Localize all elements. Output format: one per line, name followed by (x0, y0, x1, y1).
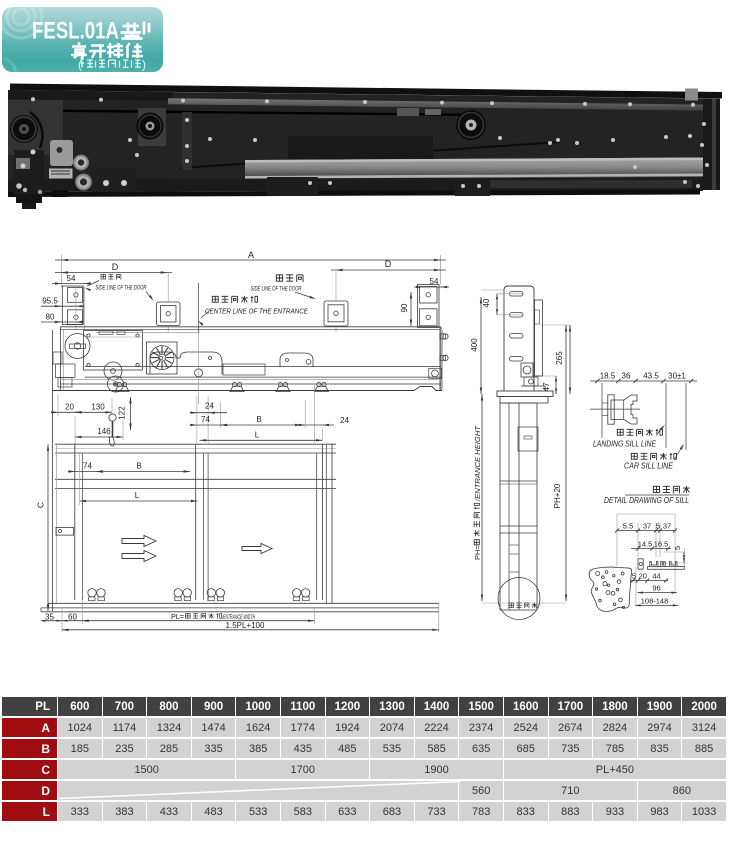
svg-text:43.5: 43.5 (643, 372, 659, 381)
svg-text:5.5: 5.5 (623, 522, 633, 531)
svg-text:C: C (36, 502, 46, 508)
svg-text:PL=: PL= (171, 612, 184, 621)
svg-text:265: 265 (555, 351, 564, 365)
svg-text:SIDE LINE OF THE DOOR: SIDE LINE OF THE DOOR (96, 285, 147, 292)
svg-text:37: 37 (663, 522, 671, 531)
svg-text:122: 122 (118, 406, 127, 420)
svg-text:74: 74 (83, 462, 92, 471)
svg-text:L: L (135, 491, 140, 500)
svg-text:47: 47 (542, 382, 551, 391)
svg-text:90: 90 (400, 303, 409, 312)
svg-text:24: 24 (340, 416, 349, 425)
svg-text:80: 80 (46, 313, 55, 322)
svg-text:24: 24 (205, 402, 214, 411)
svg-text:16.5: 16.5 (654, 540, 669, 549)
svg-text:20: 20 (65, 402, 74, 411)
svg-text:95.5: 95.5 (42, 297, 58, 306)
svg-text:PH+20: PH+20 (553, 483, 562, 508)
svg-text:96: 96 (652, 584, 660, 593)
svg-text:/ENTRANCE HEIGHT: /ENTRANCE HEIGHT (473, 425, 482, 502)
svg-text:D: D (112, 262, 119, 272)
svg-text:18.5: 18.5 (600, 372, 616, 381)
svg-text:36: 36 (622, 372, 631, 381)
svg-text:130: 130 (91, 402, 105, 411)
svg-text:SIDE LINE OF THE DOOR: SIDE LINE OF THE DOOR (251, 286, 302, 293)
svg-text:B: B (136, 462, 141, 471)
svg-text:PH=: PH= (473, 545, 482, 560)
svg-text:74: 74 (201, 415, 210, 424)
svg-text:5: 5 (656, 522, 660, 531)
svg-text:35: 35 (45, 612, 54, 621)
svg-text:LANDING SILL LINE: LANDING SILL LINE (593, 440, 657, 449)
svg-text:108-148: 108-148 (641, 597, 669, 606)
svg-text:146: 146 (97, 427, 111, 436)
svg-text:CAR SILL LINE: CAR SILL LINE (624, 462, 674, 471)
svg-text:B: B (256, 415, 261, 424)
svg-text:54: 54 (67, 274, 76, 283)
svg-text:40: 40 (482, 298, 491, 307)
svg-text:DETAIL DRAWING OF SILL: DETAIL DRAWING OF SILL (604, 496, 689, 505)
svg-text:37: 37 (643, 522, 651, 531)
svg-text:D: D (385, 259, 392, 269)
svg-text:1.5PL+100: 1.5PL+100 (226, 621, 265, 630)
svg-text:60: 60 (68, 613, 77, 622)
svg-text:CENTER LINE OF THE ENTRANCE: CENTER LINE OF THE ENTRANCE (205, 309, 308, 316)
svg-text:L: L (255, 430, 260, 439)
svg-text:30±1: 30±1 (668, 372, 686, 381)
svg-text:400: 400 (470, 338, 479, 352)
svg-text:A: A (248, 250, 254, 260)
svg-text:5: 5 (673, 546, 682, 550)
svg-text:44: 44 (652, 572, 660, 581)
